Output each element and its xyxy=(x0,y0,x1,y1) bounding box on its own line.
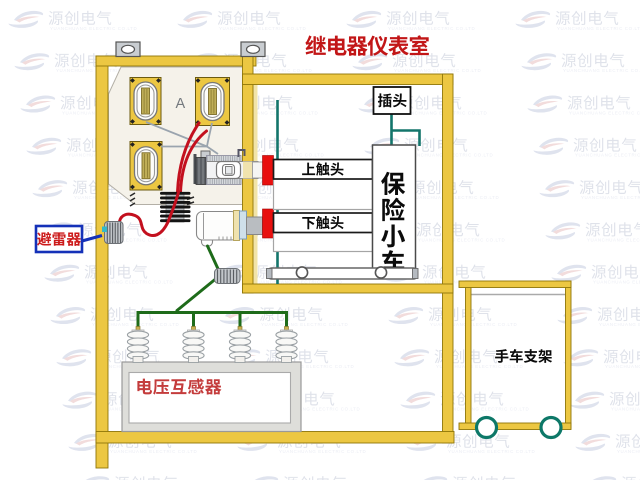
svg-text:A: A xyxy=(176,96,186,112)
